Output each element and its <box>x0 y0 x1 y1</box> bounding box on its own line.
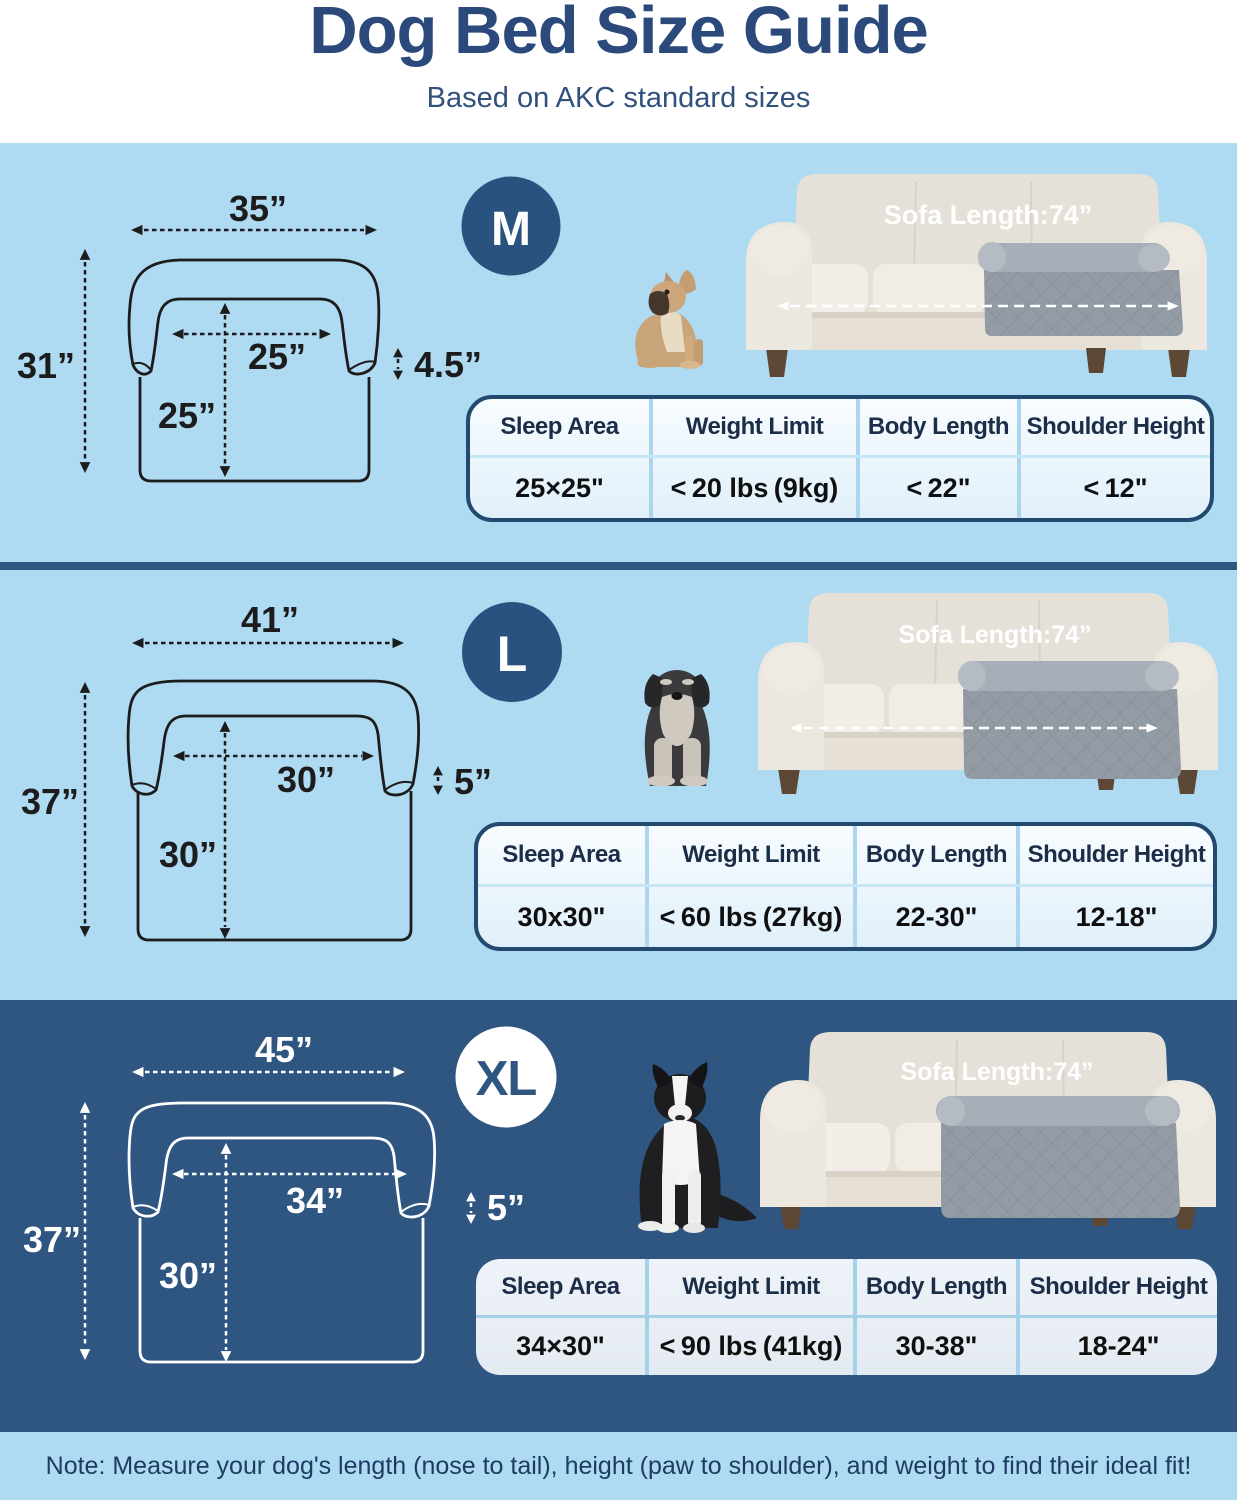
svg-text:5”: 5” <box>487 1187 525 1228</box>
svg-text:37”: 37” <box>23 1219 81 1260</box>
svg-text:Sofa Length:74”: Sofa Length:74” <box>900 1058 1093 1086</box>
svg-text:L: L <box>497 626 528 682</box>
svg-text:XL: XL <box>476 1052 537 1106</box>
svg-text:M: M <box>491 203 531 256</box>
svg-text:Sofa Length:74”: Sofa Length:74” <box>884 200 1093 230</box>
svg-text:4.5”: 4.5” <box>414 344 482 385</box>
svg-text:30”: 30” <box>159 834 217 875</box>
svg-text:Sofa Length:74”: Sofa Length:74” <box>898 621 1091 649</box>
svg-text:30”: 30” <box>159 1255 217 1296</box>
svg-text:35”: 35” <box>229 188 287 229</box>
svg-text:5”: 5” <box>454 761 492 802</box>
svg-text:41”: 41” <box>241 599 299 640</box>
svg-text:34”: 34” <box>286 1180 344 1221</box>
svg-text:37”: 37” <box>21 781 79 822</box>
svg-text:25”: 25” <box>248 336 306 377</box>
svg-text:25”: 25” <box>158 395 216 436</box>
svg-text:31”: 31” <box>17 345 75 386</box>
svg-text:45”: 45” <box>255 1029 313 1070</box>
svg-text:30”: 30” <box>277 759 335 800</box>
